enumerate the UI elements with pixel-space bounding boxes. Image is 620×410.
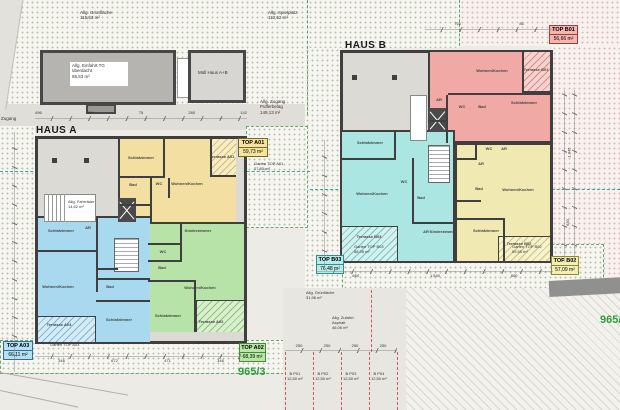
room-label: WC [486,147,493,151]
parking-divider [313,352,314,410]
room-label: Kinderzimmer [430,230,457,234]
room-label: WC [156,182,163,186]
column [392,75,397,80]
wall [428,120,447,122]
green-area-top-label: Allg. Grünfläche 115,53 m² [80,10,112,21]
waste-building [188,50,246,103]
room-label: Bad [475,187,483,191]
room-label: AR [436,98,442,102]
room-label: Schlafzimmer [106,318,132,322]
staircase-haus-b [428,145,450,183]
dimension-line-middle [322,140,327,268]
wall [180,222,182,262]
room-label: Terrasse B03 [357,235,382,239]
room-label: Terrasse A03 [47,323,72,327]
wall [148,280,196,282]
wall [168,178,170,198]
parcel-dashed-line-top [307,0,308,115]
parking-divider [397,352,398,410]
column [52,158,57,163]
room-label: Kinderzimmer [185,229,212,233]
room-label: Wohnen/Kochen [42,285,73,289]
neighbor-hatch-area [406,288,620,410]
playground-label: Allg. Spielplatz 110,52 m² [268,10,298,21]
garden-a03-label: Garten TOP A03 [50,343,79,348]
parking-stall-3: B P03 12,50 m² [343,372,359,382]
parking-divider [285,352,286,410]
green-strip-left [0,126,35,342]
room-label: Schlafzimmer [357,141,383,145]
room-label: Schlafzimmer [128,156,154,160]
garden-a02-label: Garten TOP A02 [196,341,225,346]
parking-divider [341,352,342,410]
wall [96,216,98,292]
wall [455,200,481,202]
room-label: Terrasse A01 [210,155,235,159]
room-label: Terrasse A02 [199,320,224,324]
room-label: Terrasse B01 [524,68,549,72]
wall [150,178,152,224]
dimension-line-right-1 [562,90,567,262]
dimension-row-b-top: 755 85 [425,21,553,26]
wall [148,243,182,245]
wall [120,204,150,206]
room-label: WC [401,180,408,184]
staircase-haus-a [114,238,139,272]
dimension-line-b-top [425,27,553,32]
room-label: Schlafzimmer [511,101,537,105]
wall [96,300,150,302]
dimension-line-a-top [35,116,247,121]
top-a03-label-box: TOP A03 66,11 m² [3,341,33,360]
dimension-row-a-top: 496 401 75 260 142 [35,110,247,115]
wall [148,260,182,262]
wall [96,268,118,270]
road-edge-line-1 [0,372,128,396]
room-label: Schlafzimmer [473,229,499,233]
room-label: AR [423,230,429,234]
terrace-b01 [522,52,550,93]
dimension-line-left [12,132,17,372]
haus-a-title: HAUS A [36,125,77,136]
waste-label: Müll Haus A+B [198,70,228,75]
room-label: AR [478,162,484,166]
parcel-number-965-3: 965/3 [238,366,266,378]
wall [446,95,448,143]
room-label: Wohnen/Kochen [356,192,387,196]
terrace-a03 [38,316,96,342]
dimension-number-right-1: 1.345 [567,147,572,157]
dimension-row-b-bottom: 660 1.540 660 [317,273,553,278]
wall [412,222,455,224]
column [84,158,89,163]
room-label: Bad [478,105,486,109]
parking-stall-2: B P02 12,50 m² [315,372,331,382]
wall [455,218,505,220]
room-label: Wohnen/Kochen [171,182,202,186]
parcel-number-965-4: 965/4 [600,314,620,326]
road-edge-line-2 [0,390,78,408]
room-label: Schlafzimmer [48,229,74,233]
driveway-label: Allg. Zufahrt Asphalt 46,06 m² [332,316,354,330]
dimension-row-a-bottom: 346 672 471 346 [35,358,247,363]
top-a01-label-box: TOP A01 59,73 m² [238,138,268,157]
bike-room-label: Allg. Fahrräder 14,62 m² [68,200,94,210]
elevator-haus-a [118,198,136,222]
room-label: AR [85,226,91,230]
room-label: Wohnen/Kochen [184,286,215,290]
wall [394,130,396,160]
wall [412,158,414,224]
parking-dimension-line [285,348,397,353]
room-label: Wohnen/Kochen [476,69,507,73]
room-label: Schlafzimmer [155,314,181,318]
garden-b03-label: Garten TOP B03 88,95 m² [354,245,384,255]
dimension-line-right-2 [572,90,577,262]
garden-a01-label: Garten TOP A01 27,80 m² [254,162,283,172]
parking-stall-1: B P01 12,50 m² [287,372,303,382]
wall [96,278,150,280]
wall [163,139,165,177]
terrace-a02 [196,300,244,332]
room-label: Bad [158,266,166,270]
room-label: Bad [417,196,425,200]
room-label: Bad [129,183,137,187]
wall [38,250,98,252]
wall [475,143,477,160]
room-label: Wohnen/Kochen [502,188,533,192]
access-path-label: Allg. Zugang Pufferbelag 149,13 m² [260,99,285,115]
wall [120,176,165,178]
parking-divider [369,352,370,410]
corridor-haus-b [410,95,427,141]
dimension-number-right-2: 630 [565,219,570,226]
bike-racks [44,194,66,222]
wall [448,93,550,95]
wall [342,158,396,160]
wall [455,158,477,160]
room-label: WC [459,105,466,109]
top-b01-label-box: TOP B01 56,66 m² [549,25,578,44]
column [352,75,357,80]
parking-stall-4: B P04 12,50 m² [371,372,387,382]
site-plan: Allg. Einfahrt TG überdacht 55,53 m² Mül… [0,0,620,410]
room-label: AR [501,147,507,151]
garage-label: Allg. Einfahrt TG überdacht 55,53 m² [70,62,128,86]
garage-label-area: 55,53 m² [72,74,126,79]
green-area-bottom-label: Allg. Grünfläche 31,96 m² [306,291,334,301]
garden-b02-label: Garten TOP B02 59,55 m² [512,245,542,255]
wall [503,218,505,261]
room-label: WC [160,250,167,254]
access-small-label: Zugang [1,116,16,121]
room-label: Bad [106,285,114,289]
